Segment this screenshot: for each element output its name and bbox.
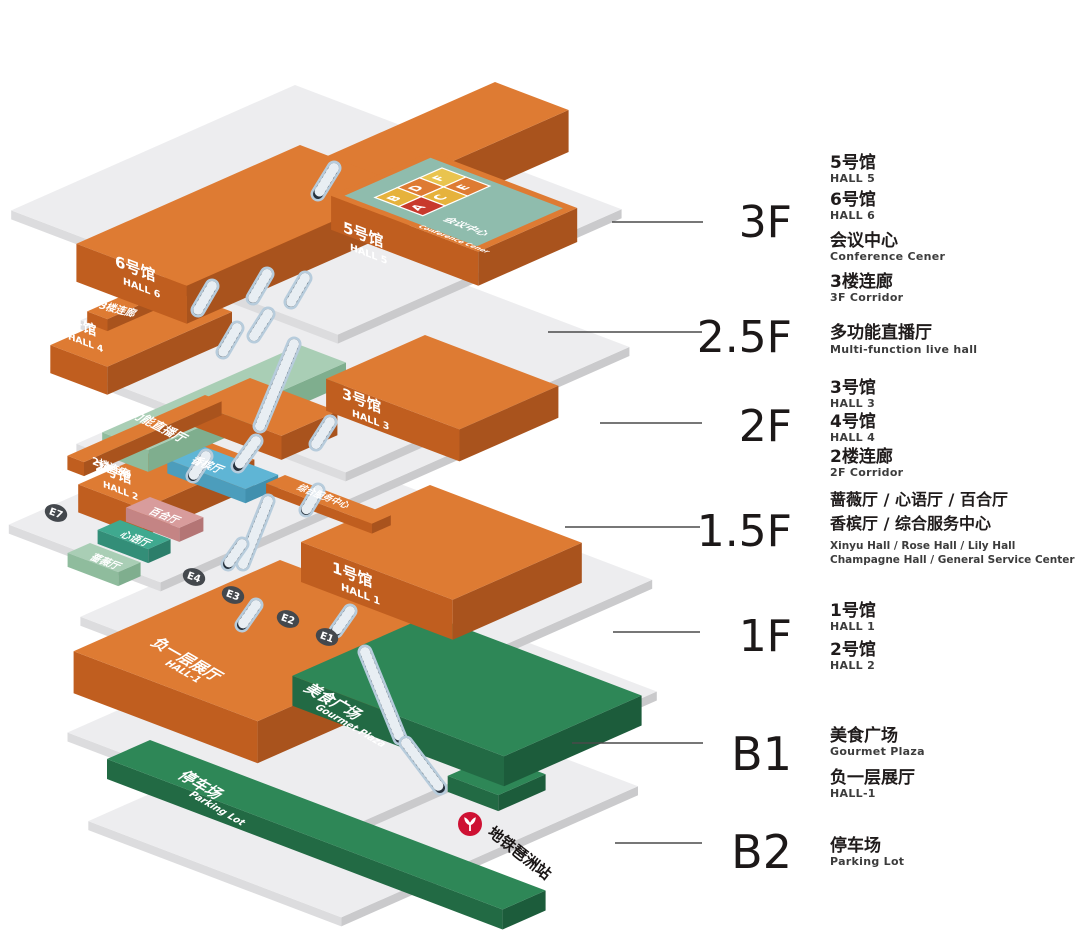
desc-b2-parking-en: Parking Lot xyxy=(830,855,904,868)
desc-1f-hall2-en: HALL 2 xyxy=(830,659,875,672)
desc-2-5f-en: Multi-function live hall xyxy=(830,343,977,356)
desc-2f-corridor-zh: 2楼连廊 xyxy=(830,446,893,467)
floor-map-svg: 6号馆 HALL 6 5号馆 HALL 5 会议中心 Conference Ce… xyxy=(0,0,1080,932)
desc-3f-conference-zh: 会议中心 xyxy=(830,230,898,251)
desc-3f-hall5-zh: 5号馆 xyxy=(830,152,876,173)
floor-code-1-5f: 1.5F xyxy=(697,506,792,557)
desc-2f-hall3-zh: 3号馆 xyxy=(830,377,876,398)
desc-1f-hall1-en: HALL 1 xyxy=(830,620,875,633)
desc-3f-hall6-en: HALL 6 xyxy=(830,209,875,222)
desc-2f-hall4-zh: 4号馆 xyxy=(830,411,876,432)
floor-code-2-5f: 2.5F xyxy=(697,312,792,363)
desc-1f-hall1-zh: 1号馆 xyxy=(830,600,876,621)
floor-map-stage: 6号馆 HALL 6 5号馆 HALL 5 会议中心 Conference Ce… xyxy=(0,0,1080,932)
desc-3f-hall5-en: HALL 5 xyxy=(830,172,875,185)
desc-3f-corridor-zh: 3楼连廊 xyxy=(830,271,893,292)
desc-b1-hallb1-en: HALL-1 xyxy=(830,787,876,800)
desc-b1-hallb1-zh: 负一层展厅 xyxy=(830,767,915,788)
desc-2f-corridor-en: 2F Corridor xyxy=(830,466,904,479)
floor-code-1f: 1F xyxy=(739,611,792,662)
desc-b2-parking-zh: 停车场 xyxy=(830,835,881,856)
desc-2f-hall3-en: HALL 3 xyxy=(830,397,875,410)
desc-3f-hall6-zh: 6号馆 xyxy=(830,189,876,210)
desc-3f-conference-en: Conference Cener xyxy=(830,250,946,263)
desc-1-5f-zh1: 蔷薇厅 / 心语厅 / 百合厅 xyxy=(830,490,1008,509)
desc-b1-gourmet-zh: 美食广场 xyxy=(830,725,898,746)
desc-3f-corridor-en: 3F Corridor xyxy=(830,291,904,304)
floor-code-b2: B2 xyxy=(731,825,792,879)
floor-descriptions: 5号馆 HALL 5 6号馆 HALL 6 会议中心 Conference Ce… xyxy=(829,152,1075,868)
desc-1-5f-zh2: 香槟厅 / 综合服务中心 xyxy=(829,514,991,533)
desc-2f-hall4-en: HALL 4 xyxy=(830,431,875,444)
floor-code-3f: 3F xyxy=(739,197,792,248)
desc-1-5f-en1: Xinyu Hall / Rose Hall / Lily Hall xyxy=(830,540,1015,552)
desc-b1-gourmet-en: Gourmet Plaza xyxy=(830,745,925,758)
desc-1f-hall2-zh: 2号馆 xyxy=(830,639,876,660)
floor-codes: 3F 2.5F 2F 1.5F 1F B1 B2 xyxy=(697,197,792,879)
floor-code-2f: 2F xyxy=(739,401,792,452)
desc-2-5f-zh: 多功能直播厅 xyxy=(830,322,932,343)
metro-logo-icon xyxy=(458,812,482,836)
floor-code-b1: B1 xyxy=(731,727,792,781)
desc-1-5f-en2: Champagne Hall / General Service Center xyxy=(830,554,1075,566)
